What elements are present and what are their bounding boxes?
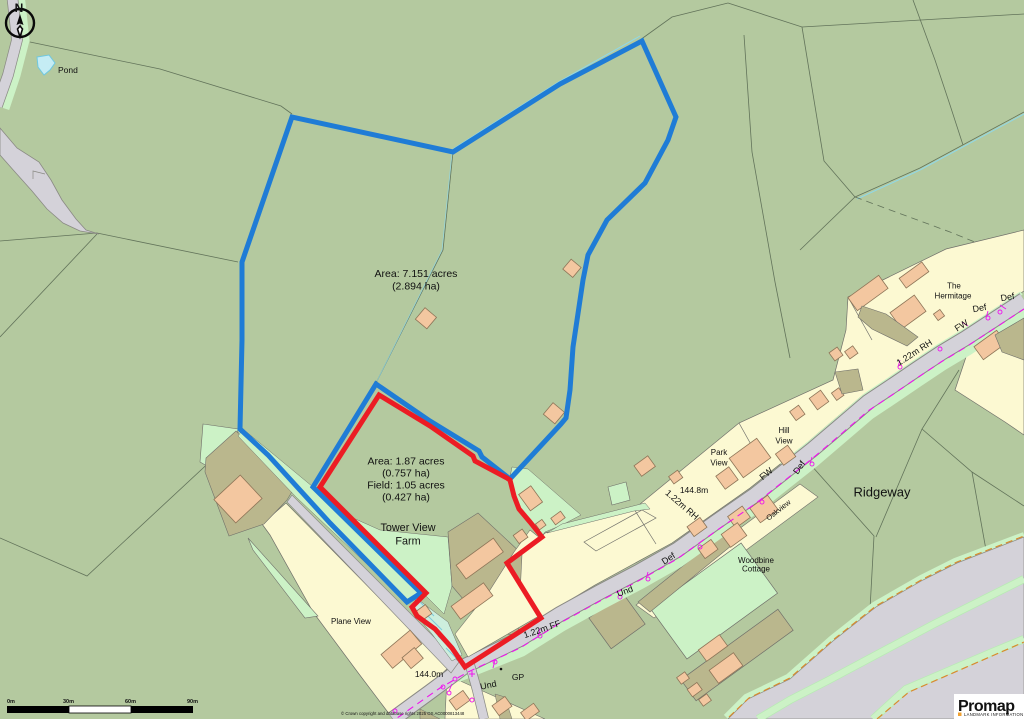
svg-text:N: N — [15, 1, 24, 15]
svg-text:Plane View: Plane View — [331, 617, 371, 626]
svg-text:Farm: Farm — [395, 536, 420, 548]
svg-text:Area: 7.151 acres: Area: 7.151 acres — [375, 268, 458, 280]
svg-text:30m: 30m — [63, 699, 74, 705]
svg-text:Hermitage: Hermitage — [935, 292, 972, 301]
svg-text:View: View — [775, 437, 792, 446]
svg-text:Hill: Hill — [778, 426, 789, 435]
svg-text:(2.894 ha): (2.894 ha) — [392, 281, 440, 293]
svg-text:90m: 90m — [187, 699, 198, 705]
svg-text:Cottage: Cottage — [742, 565, 771, 574]
svg-text:144.0m: 144.0m — [415, 669, 443, 679]
svg-text:The: The — [947, 282, 961, 291]
svg-text:60m: 60m — [125, 699, 136, 705]
svg-text:144.8m: 144.8m — [680, 485, 708, 495]
svg-text:LANDMARK INFORMATION: LANDMARK INFORMATION — [964, 712, 1023, 717]
svg-text:(0.427 ha): (0.427 ha) — [382, 491, 430, 503]
svg-text:Tower View: Tower View — [380, 522, 435, 534]
svg-text:© Crown copyright and database: © Crown copyright and database rights 20… — [341, 711, 465, 716]
svg-text:Field: 1.05 acres: Field: 1.05 acres — [367, 480, 445, 492]
svg-text:0m: 0m — [7, 699, 15, 705]
svg-text:GP: GP — [512, 672, 525, 682]
svg-text:View: View — [710, 459, 727, 468]
svg-text:Park: Park — [711, 448, 728, 457]
svg-text:Ridgeway: Ridgeway — [853, 485, 911, 500]
svg-text:Area: 1.87 acres: Area: 1.87 acres — [367, 456, 444, 468]
svg-text:Pond: Pond — [58, 65, 78, 75]
svg-text:(0.757 ha): (0.757 ha) — [382, 468, 430, 480]
